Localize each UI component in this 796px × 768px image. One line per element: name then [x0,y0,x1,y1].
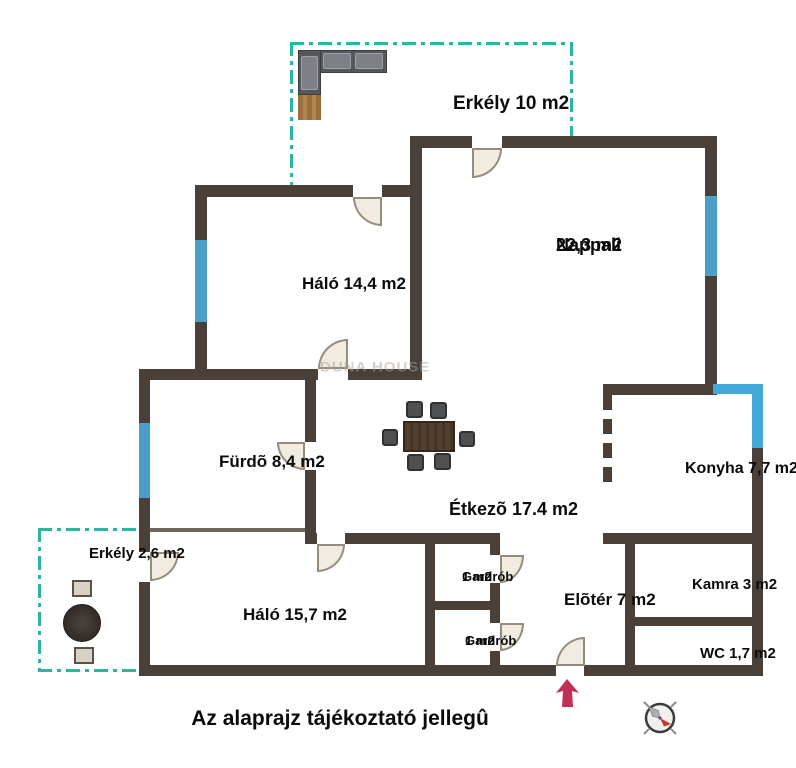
balcony-outline [38,669,140,672]
sofa-cushion [301,56,318,90]
wood-mat [298,95,321,120]
dining-chair [434,453,451,470]
watermark: DUNA HOUSE [320,360,432,376]
round-table [63,604,101,642]
wall-segment [584,665,763,676]
dining-chair [459,431,475,447]
room-label-line: Fürdõ 8,4 m2 [219,452,325,471]
wall-segment [603,384,715,395]
door-etkezo-halo15 [317,544,345,572]
wall-segment [305,470,316,533]
wall-segment [502,136,717,148]
wall-segment [410,136,472,148]
room-label-line: Háló 14,4 m2 [302,274,406,293]
balcony-outline [38,528,140,531]
window [705,196,717,276]
compass-icon [637,695,683,741]
room-label-line: Étkezõ 17.4 m2 [449,499,578,519]
window [752,384,763,448]
balcony-chair [72,580,92,597]
disclaimer-note: Az alaprajz tájékoztató jellegû [120,707,560,731]
wall-segment [195,197,207,240]
wall-segment [305,380,316,442]
room-label-line: Háló 15,7 m2 [243,605,347,624]
wall-segment [705,148,717,196]
room-label-line: 1 m2 [465,634,495,649]
wall-segment [139,369,318,380]
wall-segment [139,498,150,535]
dining-chair [407,454,424,471]
dining-chair [382,429,398,446]
wall-segment [195,322,207,369]
open-passage-dashed-wall [603,395,612,487]
window [195,240,207,322]
door-bejarat [556,637,585,666]
room-label-line: Elõtér 7 m2 [564,590,656,609]
wall-segment [752,448,763,676]
window [713,384,757,394]
wall-segment [490,533,500,555]
room-label-line: Erkély 2,6 m2 [89,546,185,563]
balcony-outline [38,528,41,672]
wall-segment [425,601,500,610]
wall-segment [139,582,150,676]
dining-chair [430,402,447,419]
wall-segment [195,185,353,197]
room-label-line: WC 1,7 m2 [700,646,776,663]
wall-segment [410,148,422,369]
room-label-line: Kamra 3 m2 [692,577,777,594]
wall-segment [705,276,717,395]
thin-wall-segment [150,528,305,532]
balcony-outline [290,42,293,188]
dining-chair [406,401,423,418]
room-label-line: Erkély 10 m2 [453,93,569,114]
window [139,423,150,498]
wall-segment [139,665,556,676]
room-label-line: 1 m2 [462,570,492,585]
sofa-cushion [323,53,351,69]
balcony-outline [290,42,573,45]
floorplan: DUNA HOUSE Az alaprajz tájékoztató jelle… [0,0,796,768]
room-label-line: 22,3 m2 [556,235,622,255]
entrance-arrow-icon [552,678,584,710]
room-label-line: Konyha 7,7 m2 [685,460,796,478]
wall-segment [345,533,498,544]
wall-segment [139,380,150,423]
wall-segment [625,617,763,626]
sofa-cushion [355,53,383,69]
balcony-outline [570,42,573,140]
balcony-chair [74,647,94,664]
dining-table [403,421,455,452]
wall-segment [305,533,317,544]
door-halo14-erkely [353,197,382,226]
door-nappali-erkely [472,148,502,178]
